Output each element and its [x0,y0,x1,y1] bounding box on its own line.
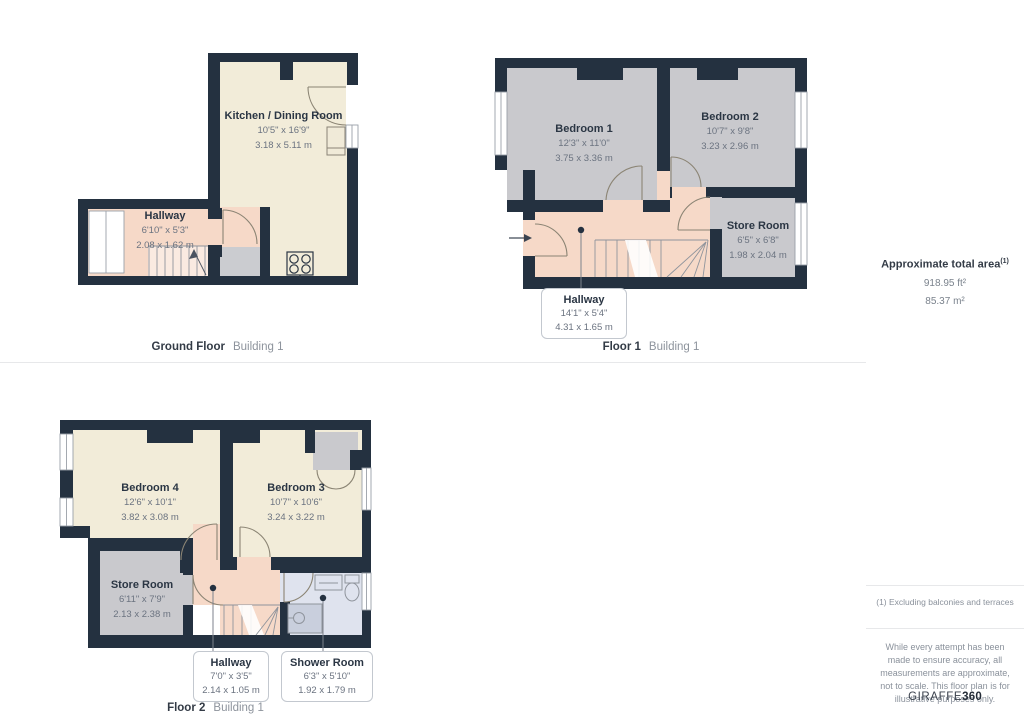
info-sidebar: Approximate total area(1) 918.95 ft² 85.… [866,0,1024,724]
floor-1-caption: Floor 1Building 1 [495,341,807,353]
floor1-hallway-callout: Hallway 14'1" x 5'4" 4.31 x 1.65 m [541,288,627,339]
floor-1-drawing [495,58,807,289]
total-area-m: 85.37 m² [866,296,1024,307]
floor-2-caption: Floor 2Building 1 [60,702,371,714]
bedroom-4-room [73,430,220,538]
floor1-store-room [722,198,795,277]
sidebar-section-divider-2 [866,628,1024,629]
shower-tray-icon [288,604,322,633]
total-area-title: Approximate total area(1) [866,258,1024,271]
bedroom-2-room [670,68,795,187]
total-area-ft: 918.95 ft² [866,278,1024,289]
floor-2-plan: Bedroom 4 12'6" x 10'1" 3.82 x 3.08 m Be… [60,420,371,648]
total-area-block: Approximate total area(1) 918.95 ft² 85.… [866,258,1024,307]
ground-floor-plan: Kitchen / Dining Room 10'5" x 16'9" 3.18… [75,53,360,285]
floor2-hallway-callout: Hallway 7'0" x 3'5" 2.14 x 1.05 m [193,651,269,702]
floor-2-drawing [60,420,371,648]
sidebar-section-divider-1 [866,585,1024,586]
sink-icon [315,575,342,590]
floor2-store-room [100,551,183,635]
footnote-text: (1) Excluding balconies and terraces [866,597,1024,607]
shower-room-callout: Shower Room 6'3" x 5'10" 1.92 x 1.79 m [281,651,373,702]
giraffe360-logo: GIRAFFE360 [866,691,1024,703]
ground-floor-drawing [75,53,360,285]
floorplan-page: Kitchen / Dining Room 10'5" x 16'9" 3.18… [0,0,1024,724]
grid-horizontal-divider [0,362,866,363]
counter-icon [327,127,345,155]
total-area-footnote-ref: (1) [1000,258,1009,265]
ground-floor-caption: Ground FloorBuilding 1 [75,341,360,353]
floor-1-plan: Bedroom 1 12'3" x 11'0" 3.75 x 3.36 m Be… [495,58,807,289]
toilet-icon [345,575,359,601]
stairs-icon [148,246,208,276]
